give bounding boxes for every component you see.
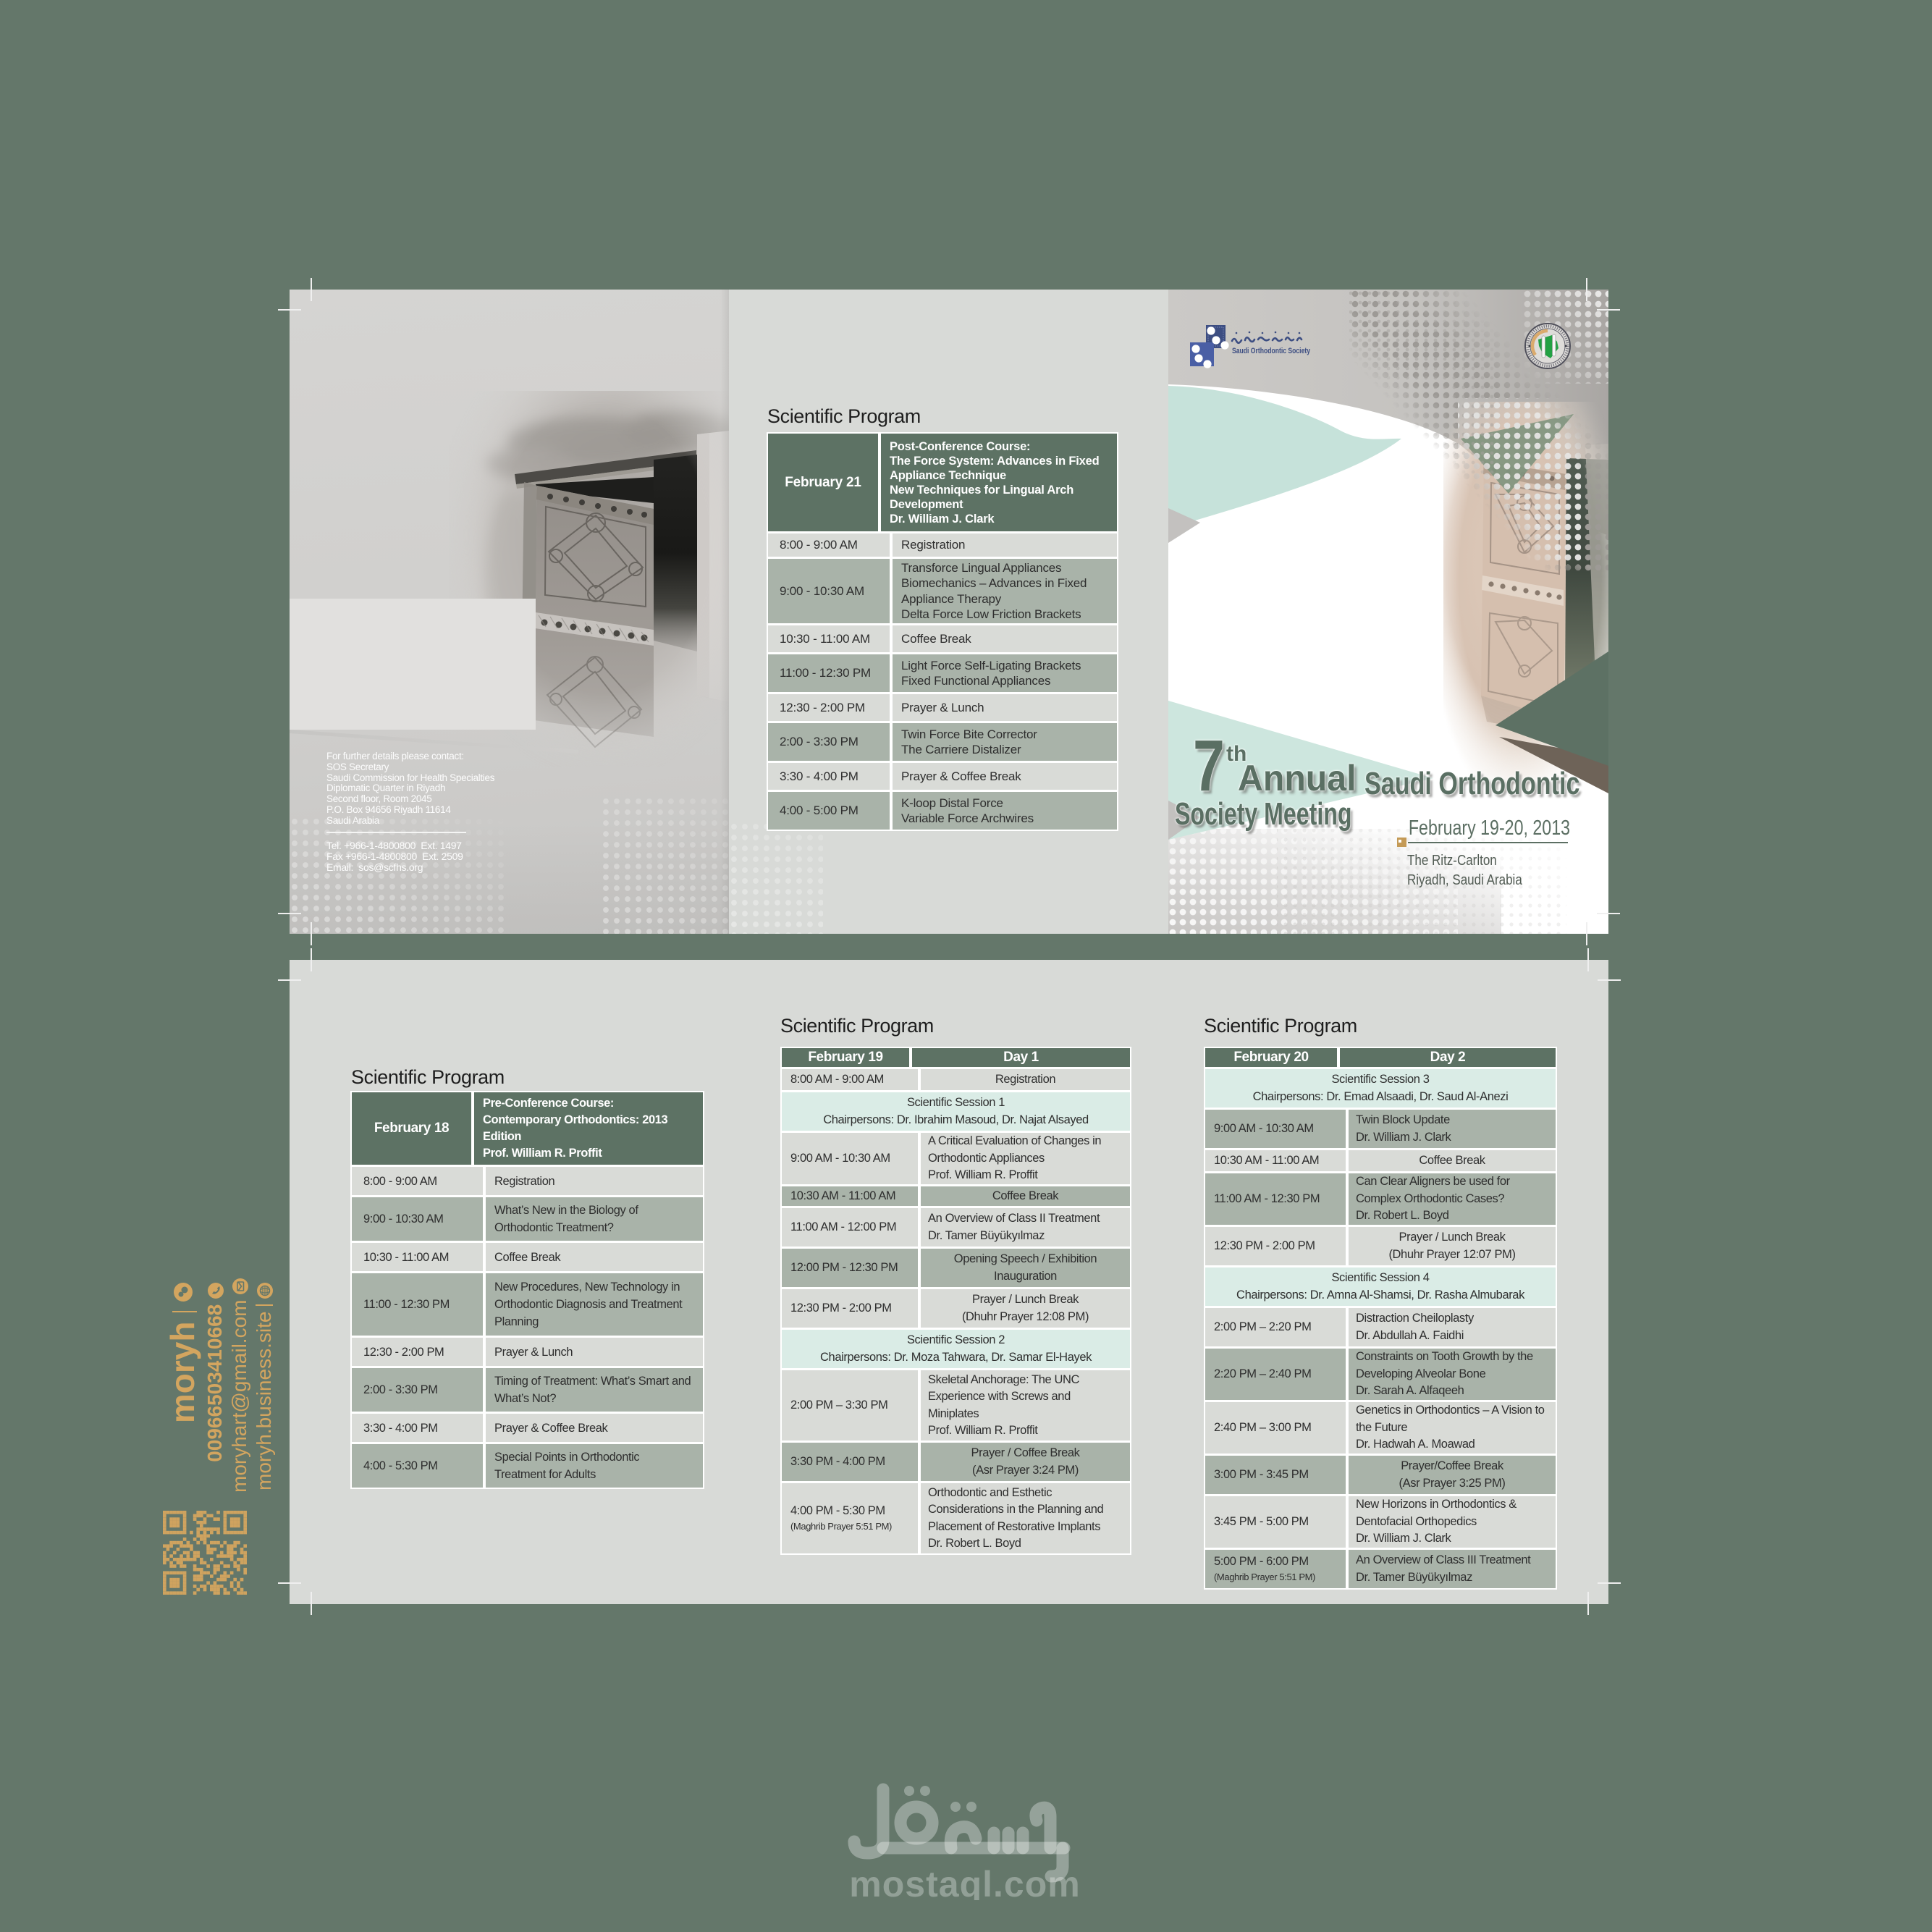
svg-text:mostaql.com: mostaql.com: [849, 1864, 1080, 1900]
svg-text:Saudi Orthodontic Society: Saudi Orthodontic Society: [1232, 347, 1311, 355]
